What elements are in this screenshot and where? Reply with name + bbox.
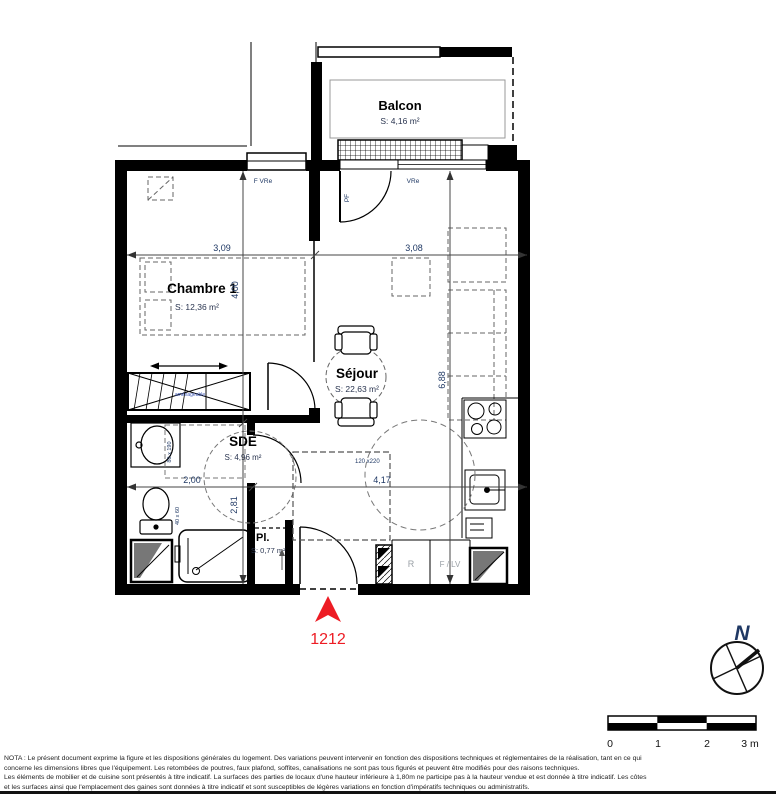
living-window-label: VRe — [407, 178, 420, 185]
living-name: Séjour — [336, 366, 379, 381]
duct-left — [131, 540, 172, 582]
dim-living-width: 3,08 — [405, 243, 423, 253]
scale-tick-0: 0 — [607, 738, 613, 750]
bedroom-area: S: 12,36 m² — [175, 302, 219, 312]
entrance-arrow-icon — [315, 596, 341, 622]
balcony: Balcon S: 4,16 m² — [311, 47, 517, 171]
hall-clearance-rect — [293, 452, 390, 540]
hall-clearance-label: 120 x220 — [355, 459, 380, 465]
chair-bottom — [335, 398, 377, 426]
wc-clearance-label: 40 x 60 — [175, 507, 181, 525]
kitchen: R F / LV — [376, 398, 518, 584]
exterior-context-lines — [118, 42, 316, 146]
living-room: Séjour S: 22,63 m² — [326, 228, 506, 426]
dim-living-height: 6,88 — [437, 371, 447, 389]
toilet — [140, 488, 172, 534]
balcony-door-label: PF — [344, 194, 351, 202]
entrance-marker: 1212 — [310, 596, 346, 648]
nota-block: NOTA : Le présent document exprime la fi… — [4, 754, 774, 792]
dim-bedroom-width: 3,09 — [213, 243, 231, 253]
living-area: S: 22,63 m² — [335, 384, 379, 394]
entrance-door — [300, 527, 357, 589]
shower — [175, 530, 251, 582]
hob — [464, 400, 506, 438]
technical-panel — [376, 545, 392, 584]
balcony-name: Balcon — [378, 98, 421, 113]
dim-sde-height: 2,81 — [229, 496, 239, 514]
nota-line-3: Les éléments de mobilier et de cuisine s… — [4, 773, 774, 783]
lot-number: 1212 — [310, 631, 346, 648]
usage-space — [165, 425, 245, 478]
sde-clearance-label: 80 x 190 — [167, 441, 173, 462]
fridge-label: R — [408, 559, 415, 569]
bed — [140, 177, 305, 335]
bedroom: Chambre 1 S: 12,36 m² aménageable — [128, 177, 305, 410]
sink — [465, 470, 505, 510]
scale-tick-1: 1 — [655, 738, 661, 750]
scale-tick-3: 3 m — [741, 738, 759, 750]
balcony-railing — [338, 140, 462, 160]
bedroom-window-label: F VRe — [254, 178, 273, 185]
balcony-area: S: 4,16 m² — [380, 116, 419, 126]
bedroom-name: Chambre 1 — [167, 281, 237, 296]
balcony-door-sill — [340, 160, 398, 169]
chair-top — [335, 326, 377, 354]
sde-room: SDE S: 4,96 m² 80 x 190 40 x 60 — [131, 423, 296, 582]
nota-line-2: concerne les dimensions libres que l'équ… — [4, 764, 774, 774]
coffee-table — [392, 258, 430, 296]
closet-name: Pl. — [256, 532, 269, 544]
nota-line-1: NOTA : Le présent document exprime la fi… — [4, 754, 774, 764]
bottom-rule — [0, 791, 776, 794]
dim-sde-width: 2,00 — [183, 475, 201, 485]
dim-kitchen-width: 4,17 — [373, 475, 391, 485]
scale-tick-2: 2 — [704, 738, 710, 750]
compass: N — [711, 622, 763, 694]
floor-plan-page: Balcon S: 4,16 m² F VRe VRe PF — [0, 0, 776, 800]
dim-bedroom-height: 4,00 — [230, 281, 240, 299]
floor-plan-drawing: Balcon S: 4,16 m² F VRe VRe PF — [0, 0, 776, 800]
duct-corner — [470, 548, 507, 584]
wardrobe-label: aménageable — [175, 392, 206, 398]
bedroom-door — [268, 363, 315, 410]
closet: Pl. S: 0,77 m² — [251, 528, 286, 570]
sofa-units — [392, 228, 506, 420]
counter-cabinet — [466, 518, 492, 538]
wardrobe: aménageable — [128, 363, 250, 411]
scale-bar: 0 1 2 3 m — [607, 716, 759, 750]
